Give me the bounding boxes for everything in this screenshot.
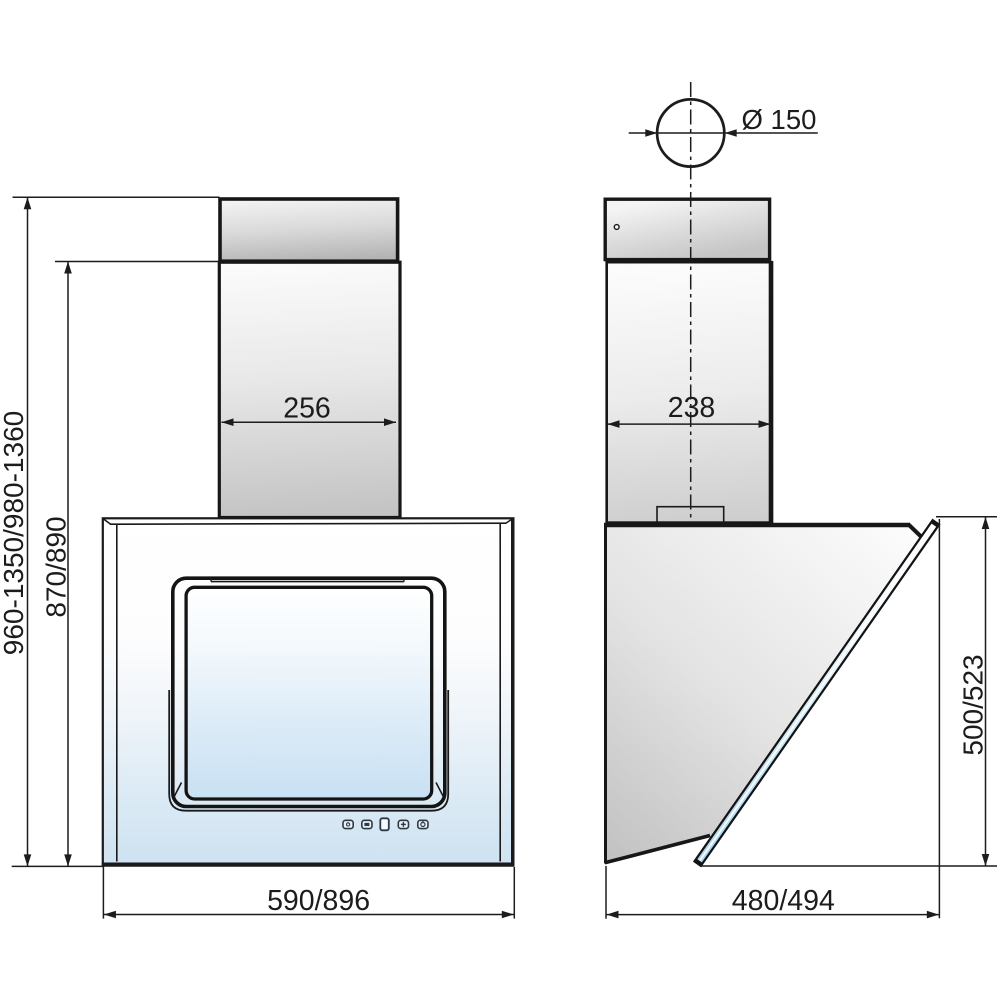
svg-text:238: 238 [668, 392, 716, 424]
svg-text:256: 256 [283, 393, 331, 425]
svg-text:960-1350/980-1360: 960-1350/980-1360 [0, 411, 29, 655]
svg-text:Ø 150: Ø 150 [742, 104, 817, 135]
svg-text:500/523: 500/523 [958, 654, 989, 755]
svg-text:480/494: 480/494 [732, 885, 835, 917]
svg-text:590/896: 590/896 [267, 885, 370, 917]
svg-text:870/890: 870/890 [41, 516, 72, 617]
